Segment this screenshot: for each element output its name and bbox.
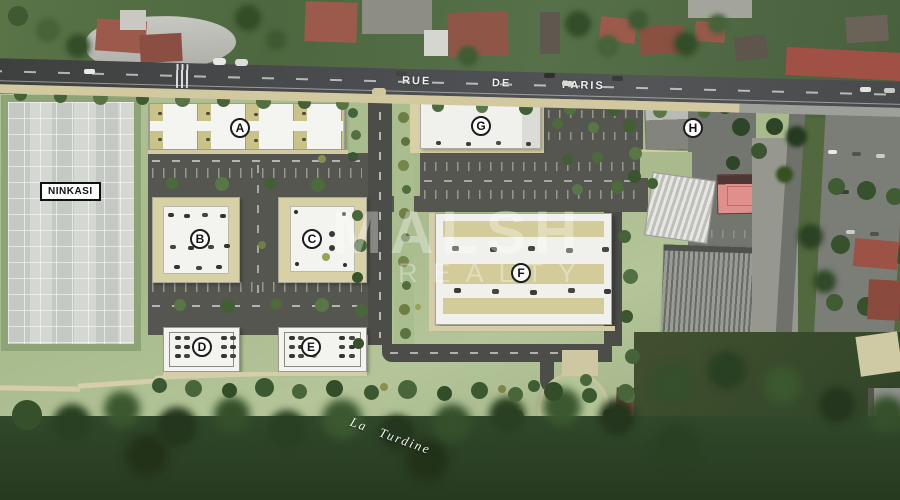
ninkasi-building-footprint [8,102,134,344]
trees-lot-edge [352,210,363,221]
building-f-band [443,298,604,314]
road-cars [84,69,95,74]
building-marker-b: B [190,229,210,249]
house-roof [540,12,560,54]
building-e-roof-units [289,336,295,340]
house-roof [867,279,900,321]
building-f-band [443,221,604,237]
house-roof [853,238,899,270]
house-roof [845,15,889,44]
building-b-roof-units [168,213,174,217]
house-roof [120,10,146,30]
building-marker-h: H [683,118,703,138]
crosswalk [176,64,189,88]
house-roof [734,34,768,61]
parking-ticks [152,168,362,178]
parking-lot-g-south [420,152,648,212]
house-roof [688,0,752,18]
parking-ticks [548,132,638,140]
trees-east-of-a [348,108,358,118]
building-e-inner [284,332,361,367]
parked-cars [828,150,837,154]
house-roof [447,11,508,57]
forest-clearing [855,331,900,376]
building-marker-c: C [302,229,322,249]
trees-right-road [766,118,783,135]
house-roof [694,21,725,43]
trees-cluster [8,6,28,26]
shrubs-olive [318,155,326,163]
building-marker-e: E [301,337,321,357]
median-trees [398,112,409,123]
warehouse-white-roof [644,172,716,244]
sidewalk-strip [148,150,348,154]
junction-island [372,88,386,96]
forest-canopy [12,400,42,430]
site-plan-screenshot: NINKASI [0,0,900,500]
house-roof [139,33,182,63]
basketball-court-lines [727,186,753,206]
building-c-roof-units [294,210,298,214]
house-roof [639,25,684,55]
playground-pad [562,350,598,376]
house-roof [362,0,432,34]
street-name-paris: PARIS [562,79,605,92]
parking-ticks [424,162,644,171]
parking-ticks [424,190,644,199]
sidewalk-strip [433,326,615,331]
parking-trees-gh [552,118,563,129]
parking-trees-bc [166,177,178,189]
building-marker-f: F [511,263,531,283]
lot-marking [424,180,644,182]
warehouse-dark-roof [660,244,758,344]
house-roof [424,30,448,56]
trees-oval [528,380,540,392]
building-c-core [290,206,355,272]
lot-marking [152,305,362,307]
south-tree-row [152,378,167,393]
building-marker-d: D [192,337,212,357]
road-centerline [379,92,381,338]
house-roof [599,16,637,44]
parking-ticks [152,282,362,292]
building-marker-a: A [230,118,250,138]
building-a-roof-units [158,112,162,115]
forest-band [0,416,900,500]
house-roof [304,1,357,43]
building-f-roof-units [452,246,459,251]
ninkasi-label: NINKASI [40,182,101,201]
building-g-roof-units [436,141,441,145]
trees-east-of-f [618,230,631,243]
lot-marking [257,165,259,300]
building-marker-g: G [471,116,491,136]
street-name-de: DE [492,77,512,90]
building-d-roof-units [175,336,181,340]
street-name-rue: RUE [402,75,432,88]
lot-marking [152,160,362,162]
